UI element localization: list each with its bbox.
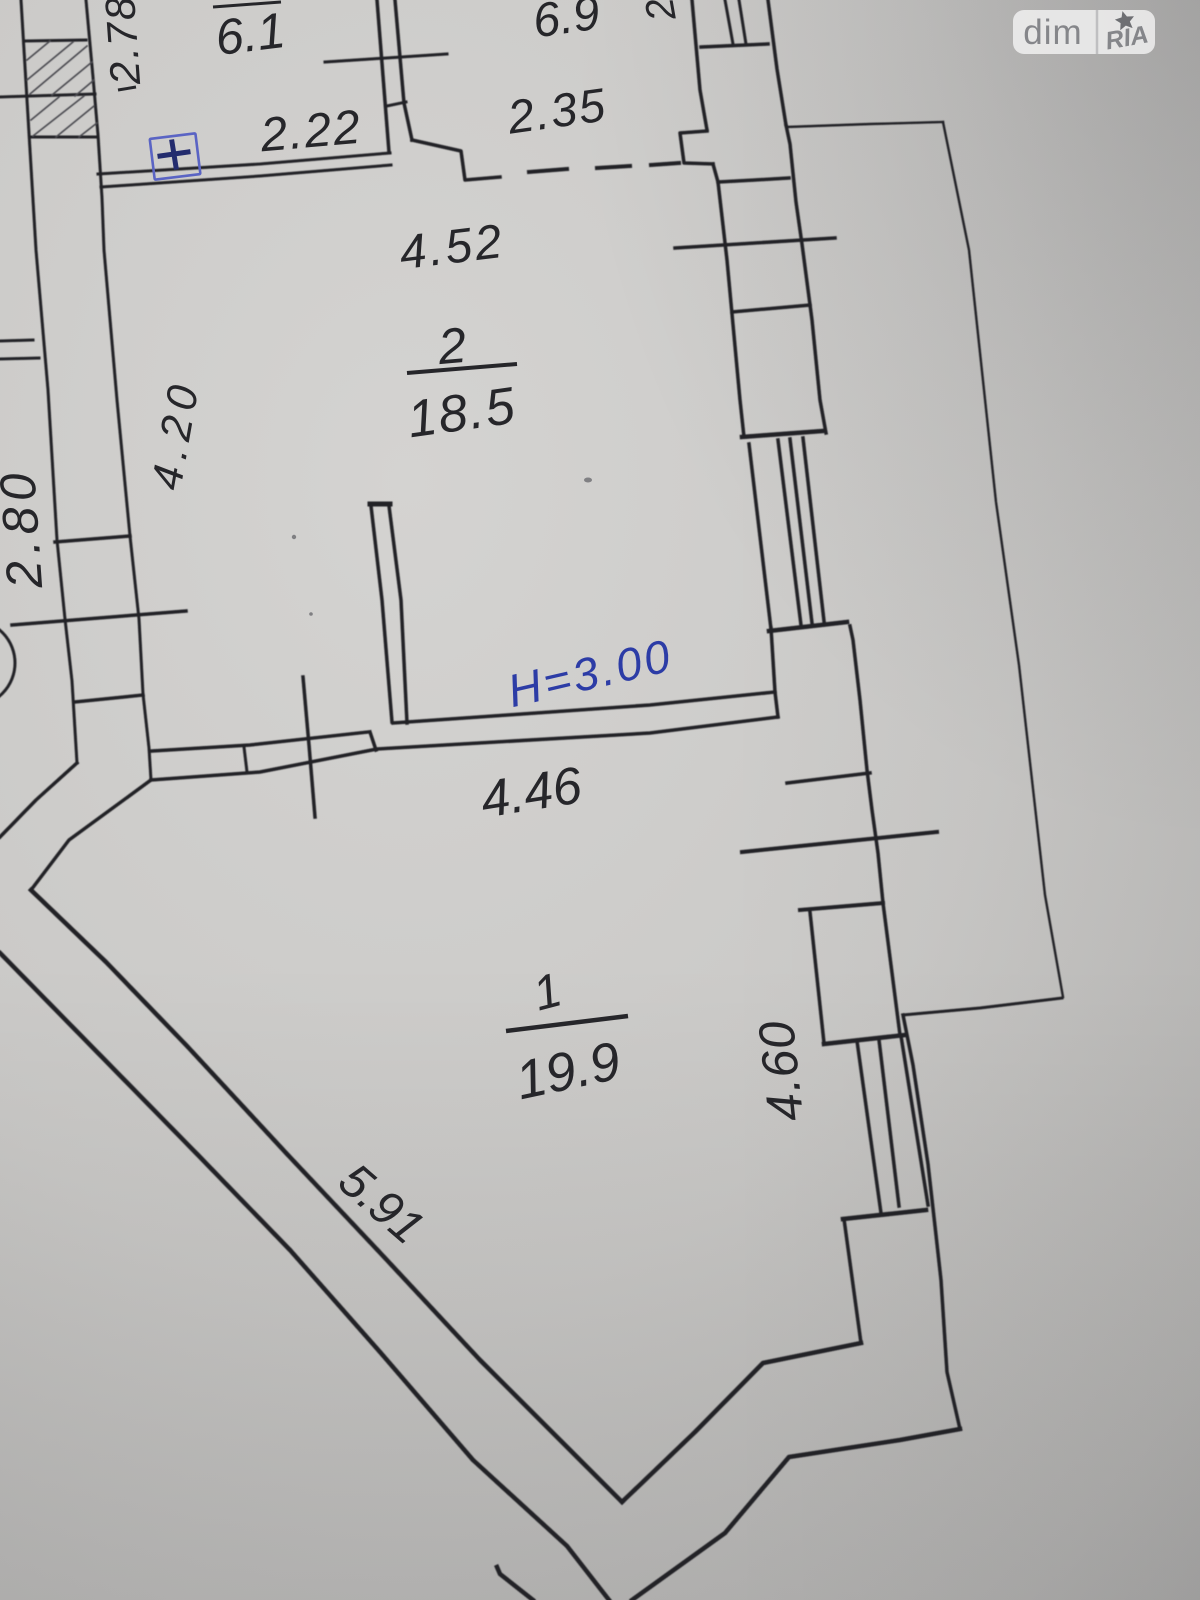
svg-text:6.1: 6.1: [212, 2, 288, 66]
svg-text:4.60: 4.60: [748, 1018, 814, 1125]
svg-text:2.78: 2.78: [96, 0, 149, 87]
svg-text:2.80: 2.80: [0, 465, 53, 591]
svg-text:dim: dim: [1023, 13, 1082, 52]
svg-text:2.22: 2.22: [257, 101, 364, 163]
